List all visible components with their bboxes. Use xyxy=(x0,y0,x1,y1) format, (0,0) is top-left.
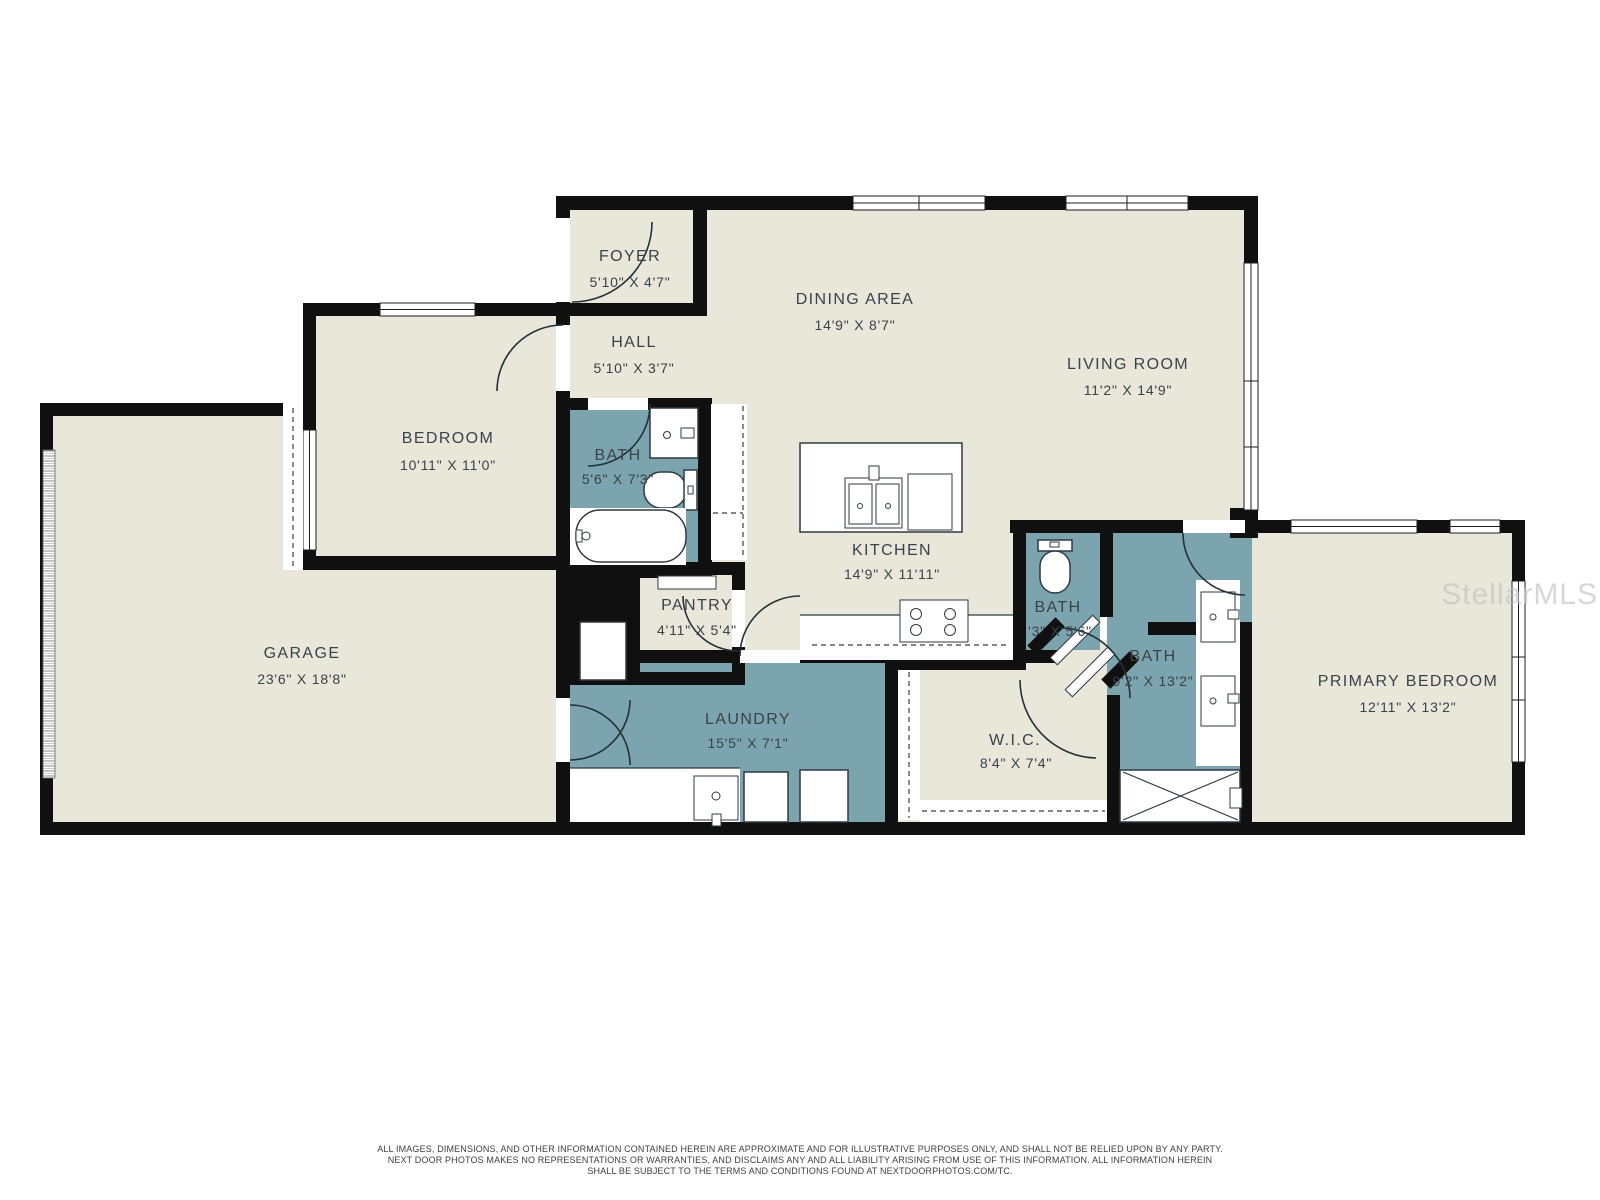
dishwasher-fixture xyxy=(908,474,952,530)
floor-plan-image: FOYER 5'10" X 4'7" DINING AREA 14'9" X 8… xyxy=(0,0,1600,1200)
room-label-kitchen: KITCHEN xyxy=(852,542,932,559)
room-label-bath1: BATH xyxy=(594,447,641,464)
room-label-wic: W.I.C. xyxy=(989,732,1041,749)
room-dims-dining: 14'9" X 8'7" xyxy=(815,317,896,333)
room-dims-bath3: 9'2" X 13'2" xyxy=(1113,673,1194,689)
window xyxy=(1291,520,1417,533)
pantry-shelf xyxy=(658,576,716,589)
window xyxy=(853,196,985,210)
room-dims-wic: 8'4" X 7'4" xyxy=(980,755,1052,771)
toilet-fixture xyxy=(1040,551,1070,593)
laundry-fixtures xyxy=(570,768,848,826)
room-dims-bedroom: 10'11" X 11'0" xyxy=(400,457,496,473)
window xyxy=(1066,196,1188,210)
bath2-fixtures xyxy=(1038,540,1072,593)
room-dims-bath1: 5'6" X 7'3" xyxy=(582,471,654,487)
room-label-bedroom: BEDROOM xyxy=(402,430,494,447)
room-dims-living: 11'2" X 14'9" xyxy=(1084,382,1172,398)
room-label-pantry: PANTRY xyxy=(661,597,733,614)
garage-door xyxy=(43,450,55,778)
room-dims-pantry: 4'11" X 5'4" xyxy=(657,622,737,638)
disclaimer-line-2: NEXT DOOR PHOTOS MAKES NO REPRESENTATION… xyxy=(388,1155,1213,1165)
room-dims-hall: 5'10" X 3'7" xyxy=(594,360,675,376)
bathtub-fixture xyxy=(576,510,686,562)
room-dims-laundry: 15'5" X 7'1" xyxy=(708,735,789,751)
window xyxy=(1244,263,1258,510)
room-floors xyxy=(53,210,1512,822)
window xyxy=(1450,520,1500,533)
floor-plan-page: FOYER 5'10" X 4'7" DINING AREA 14'9" X 8… xyxy=(0,0,1600,1200)
room-label-primary: PRIMARY BEDROOM xyxy=(1318,673,1498,690)
dryer-fixture xyxy=(800,770,848,822)
room-label-foyer: FOYER xyxy=(599,248,661,265)
room-label-bath2: BATH xyxy=(1034,599,1081,616)
faucet-icon xyxy=(869,466,879,480)
room-label-dining: DINING AREA xyxy=(796,291,915,308)
closet-nook xyxy=(711,404,747,560)
room-label-garage: GARAGE xyxy=(264,645,341,662)
utility-appliance xyxy=(580,622,626,680)
room-dims-bath2: '3" X 5'6" xyxy=(1028,623,1092,639)
room-dims-primary: 12'11" X 13'2" xyxy=(1359,699,1456,715)
room-dims-garage: 23'6" X 18'8" xyxy=(257,671,347,687)
disclaimer-line-3: SHALL BE SUBJECT TO THE TERMS AND CONDIT… xyxy=(587,1166,1012,1176)
washer-fixture xyxy=(744,772,788,822)
room-label-bath3: BATH xyxy=(1129,648,1176,665)
disclaimer: ALL IMAGES, DIMENSIONS, AND OTHER INFORM… xyxy=(377,1144,1223,1176)
room-label-laundry: LAUNDRY xyxy=(705,711,791,728)
room-label-hall: HALL xyxy=(611,334,657,351)
room-dims-kitchen: 14'9" X 11'11" xyxy=(844,566,940,582)
room-label-living: LIVING ROOM xyxy=(1067,356,1189,373)
room-dims-foyer: 5'10" X 4'7" xyxy=(590,274,671,290)
shower-valve xyxy=(1230,788,1242,808)
cooktop-fixture xyxy=(900,600,968,642)
window xyxy=(380,303,475,316)
watermark-stellarmls: StellarMLS xyxy=(1441,578,1598,611)
window xyxy=(303,430,316,550)
disclaimer-line-1: ALL IMAGES, DIMENSIONS, AND OTHER INFORM… xyxy=(377,1144,1223,1154)
